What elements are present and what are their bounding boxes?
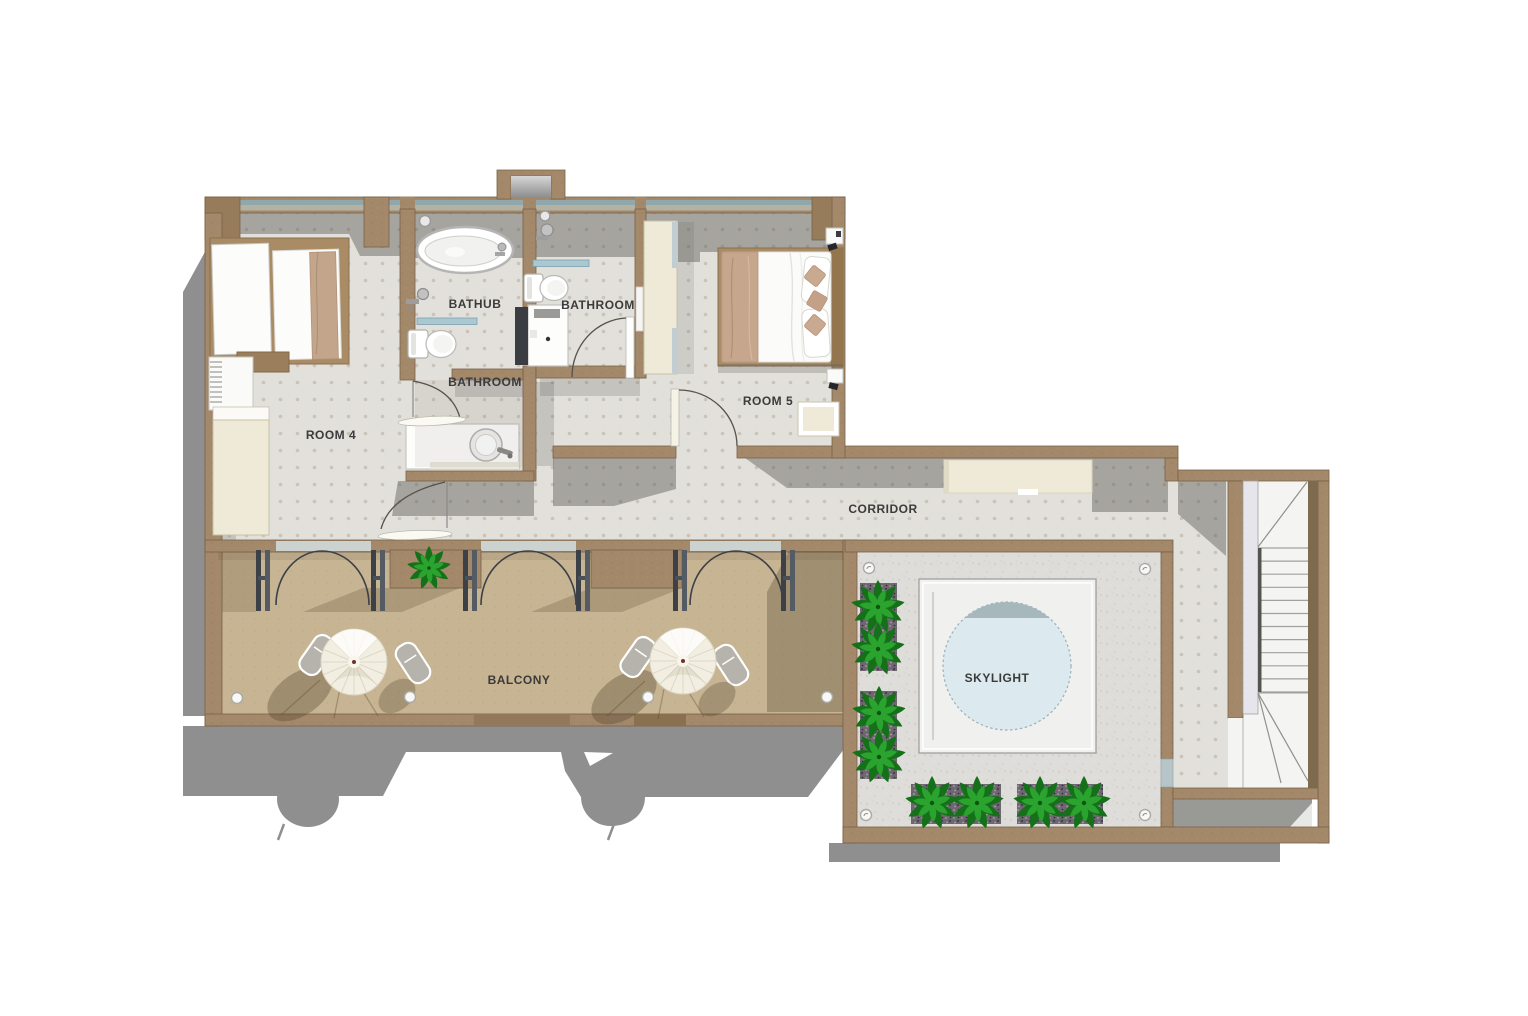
svg-text:BATHROOM: BATHROOM	[448, 375, 522, 389]
svg-text:ROOM 5: ROOM 5	[743, 394, 793, 408]
svg-text:MAIL MAIL MAIL: MAIL MAIL MAIL	[913, 557, 1107, 573]
svg-text:SKYLIGHT: SKYLIGHT	[965, 671, 1030, 685]
svg-text:BALCONY: BALCONY	[488, 673, 551, 687]
svg-text:BATHROOM: BATHROOM	[561, 298, 635, 312]
svg-text:ROOM 4: ROOM 4	[306, 428, 356, 442]
svg-text:CORRIDOR: CORRIDOR	[848, 502, 917, 516]
svg-text:BATHUB: BATHUB	[449, 297, 502, 311]
